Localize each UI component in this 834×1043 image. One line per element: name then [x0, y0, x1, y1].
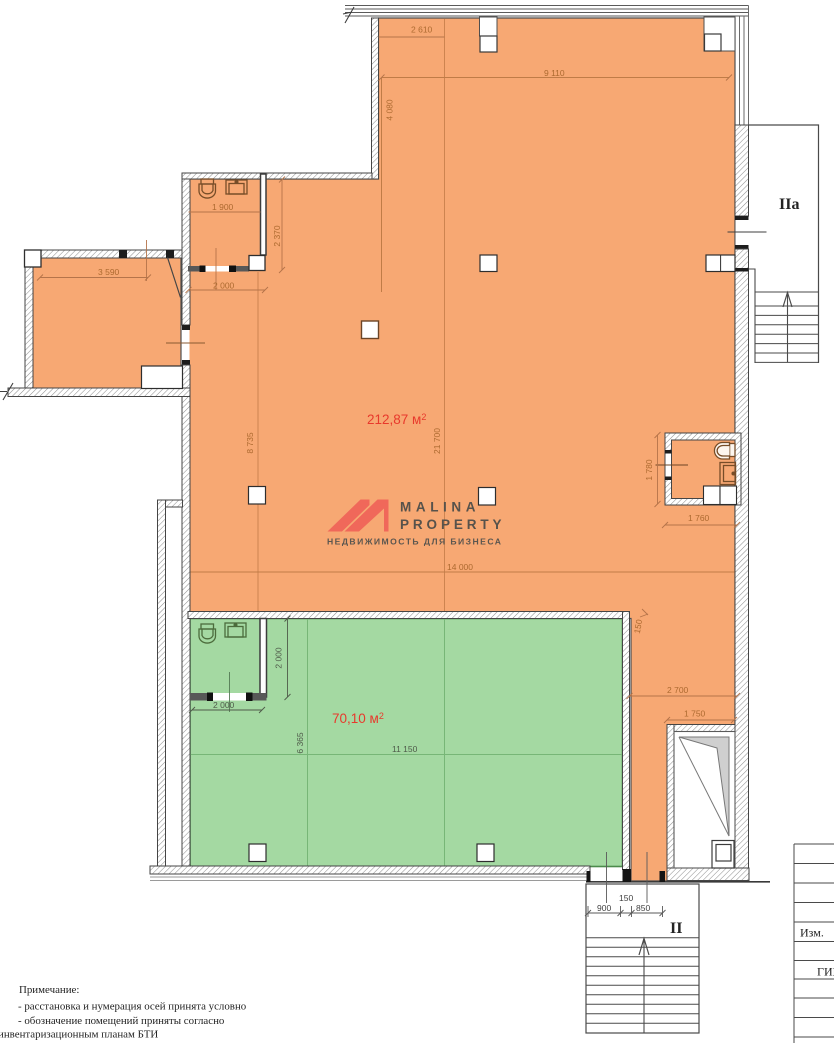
- svg-text:21 700: 21 700: [432, 428, 442, 454]
- svg-text:2 370: 2 370: [272, 225, 282, 247]
- svg-text:2 700: 2 700: [667, 685, 689, 695]
- svg-text:IIa: IIa: [779, 196, 799, 213]
- svg-text:11 150: 11 150: [392, 744, 418, 754]
- svg-text:2 000: 2 000: [274, 647, 284, 669]
- svg-text:инвентаризационным планам БТИ: инвентаризационным планам БТИ: [0, 1029, 158, 1041]
- svg-text:3 590: 3 590: [98, 267, 120, 277]
- svg-text:1 750: 1 750: [684, 709, 706, 719]
- svg-text:900: 900: [597, 903, 611, 913]
- svg-text:1 780: 1 780: [644, 459, 654, 481]
- svg-text:Изм.: Изм.: [800, 926, 824, 940]
- svg-text:II: II: [670, 920, 682, 937]
- svg-text:8 735: 8 735: [245, 432, 255, 454]
- svg-text:2 610: 2 610: [411, 25, 433, 35]
- svg-text:4 080: 4 080: [385, 99, 395, 121]
- svg-text:2 000: 2 000: [213, 281, 235, 291]
- svg-text:212,87 м2: 212,87 м2: [367, 412, 426, 427]
- svg-text:150: 150: [619, 893, 633, 903]
- svg-text:НЕДВИЖИМОСТЬ ДЛЯ БИЗНЕСА: НЕДВИЖИМОСТЬ ДЛЯ БИЗНЕСА: [327, 537, 502, 547]
- svg-text:MALINA: MALINA: [400, 500, 480, 515]
- svg-text:850: 850: [636, 903, 650, 913]
- svg-text:1 900: 1 900: [212, 202, 234, 212]
- svg-text:6 365: 6 365: [295, 732, 305, 754]
- svg-text:14 000: 14 000: [447, 562, 473, 572]
- svg-text:9 110: 9 110: [544, 68, 565, 78]
- svg-text:2 000: 2 000: [213, 700, 235, 710]
- svg-text:ГИП: ГИП: [817, 965, 834, 979]
- svg-text:- расстановка и нумерация осей: - расстановка и нумерация осей принята у…: [18, 1001, 247, 1013]
- svg-text:- обозначение помещений принят: - обозначение помещений приняты согласно: [18, 1015, 225, 1027]
- svg-text:Примечание:: Примечание:: [19, 984, 79, 996]
- svg-text:PROPERTY: PROPERTY: [400, 517, 505, 532]
- svg-text:1 760: 1 760: [688, 513, 710, 523]
- svg-text:70,10 м2: 70,10 м2: [332, 711, 384, 726]
